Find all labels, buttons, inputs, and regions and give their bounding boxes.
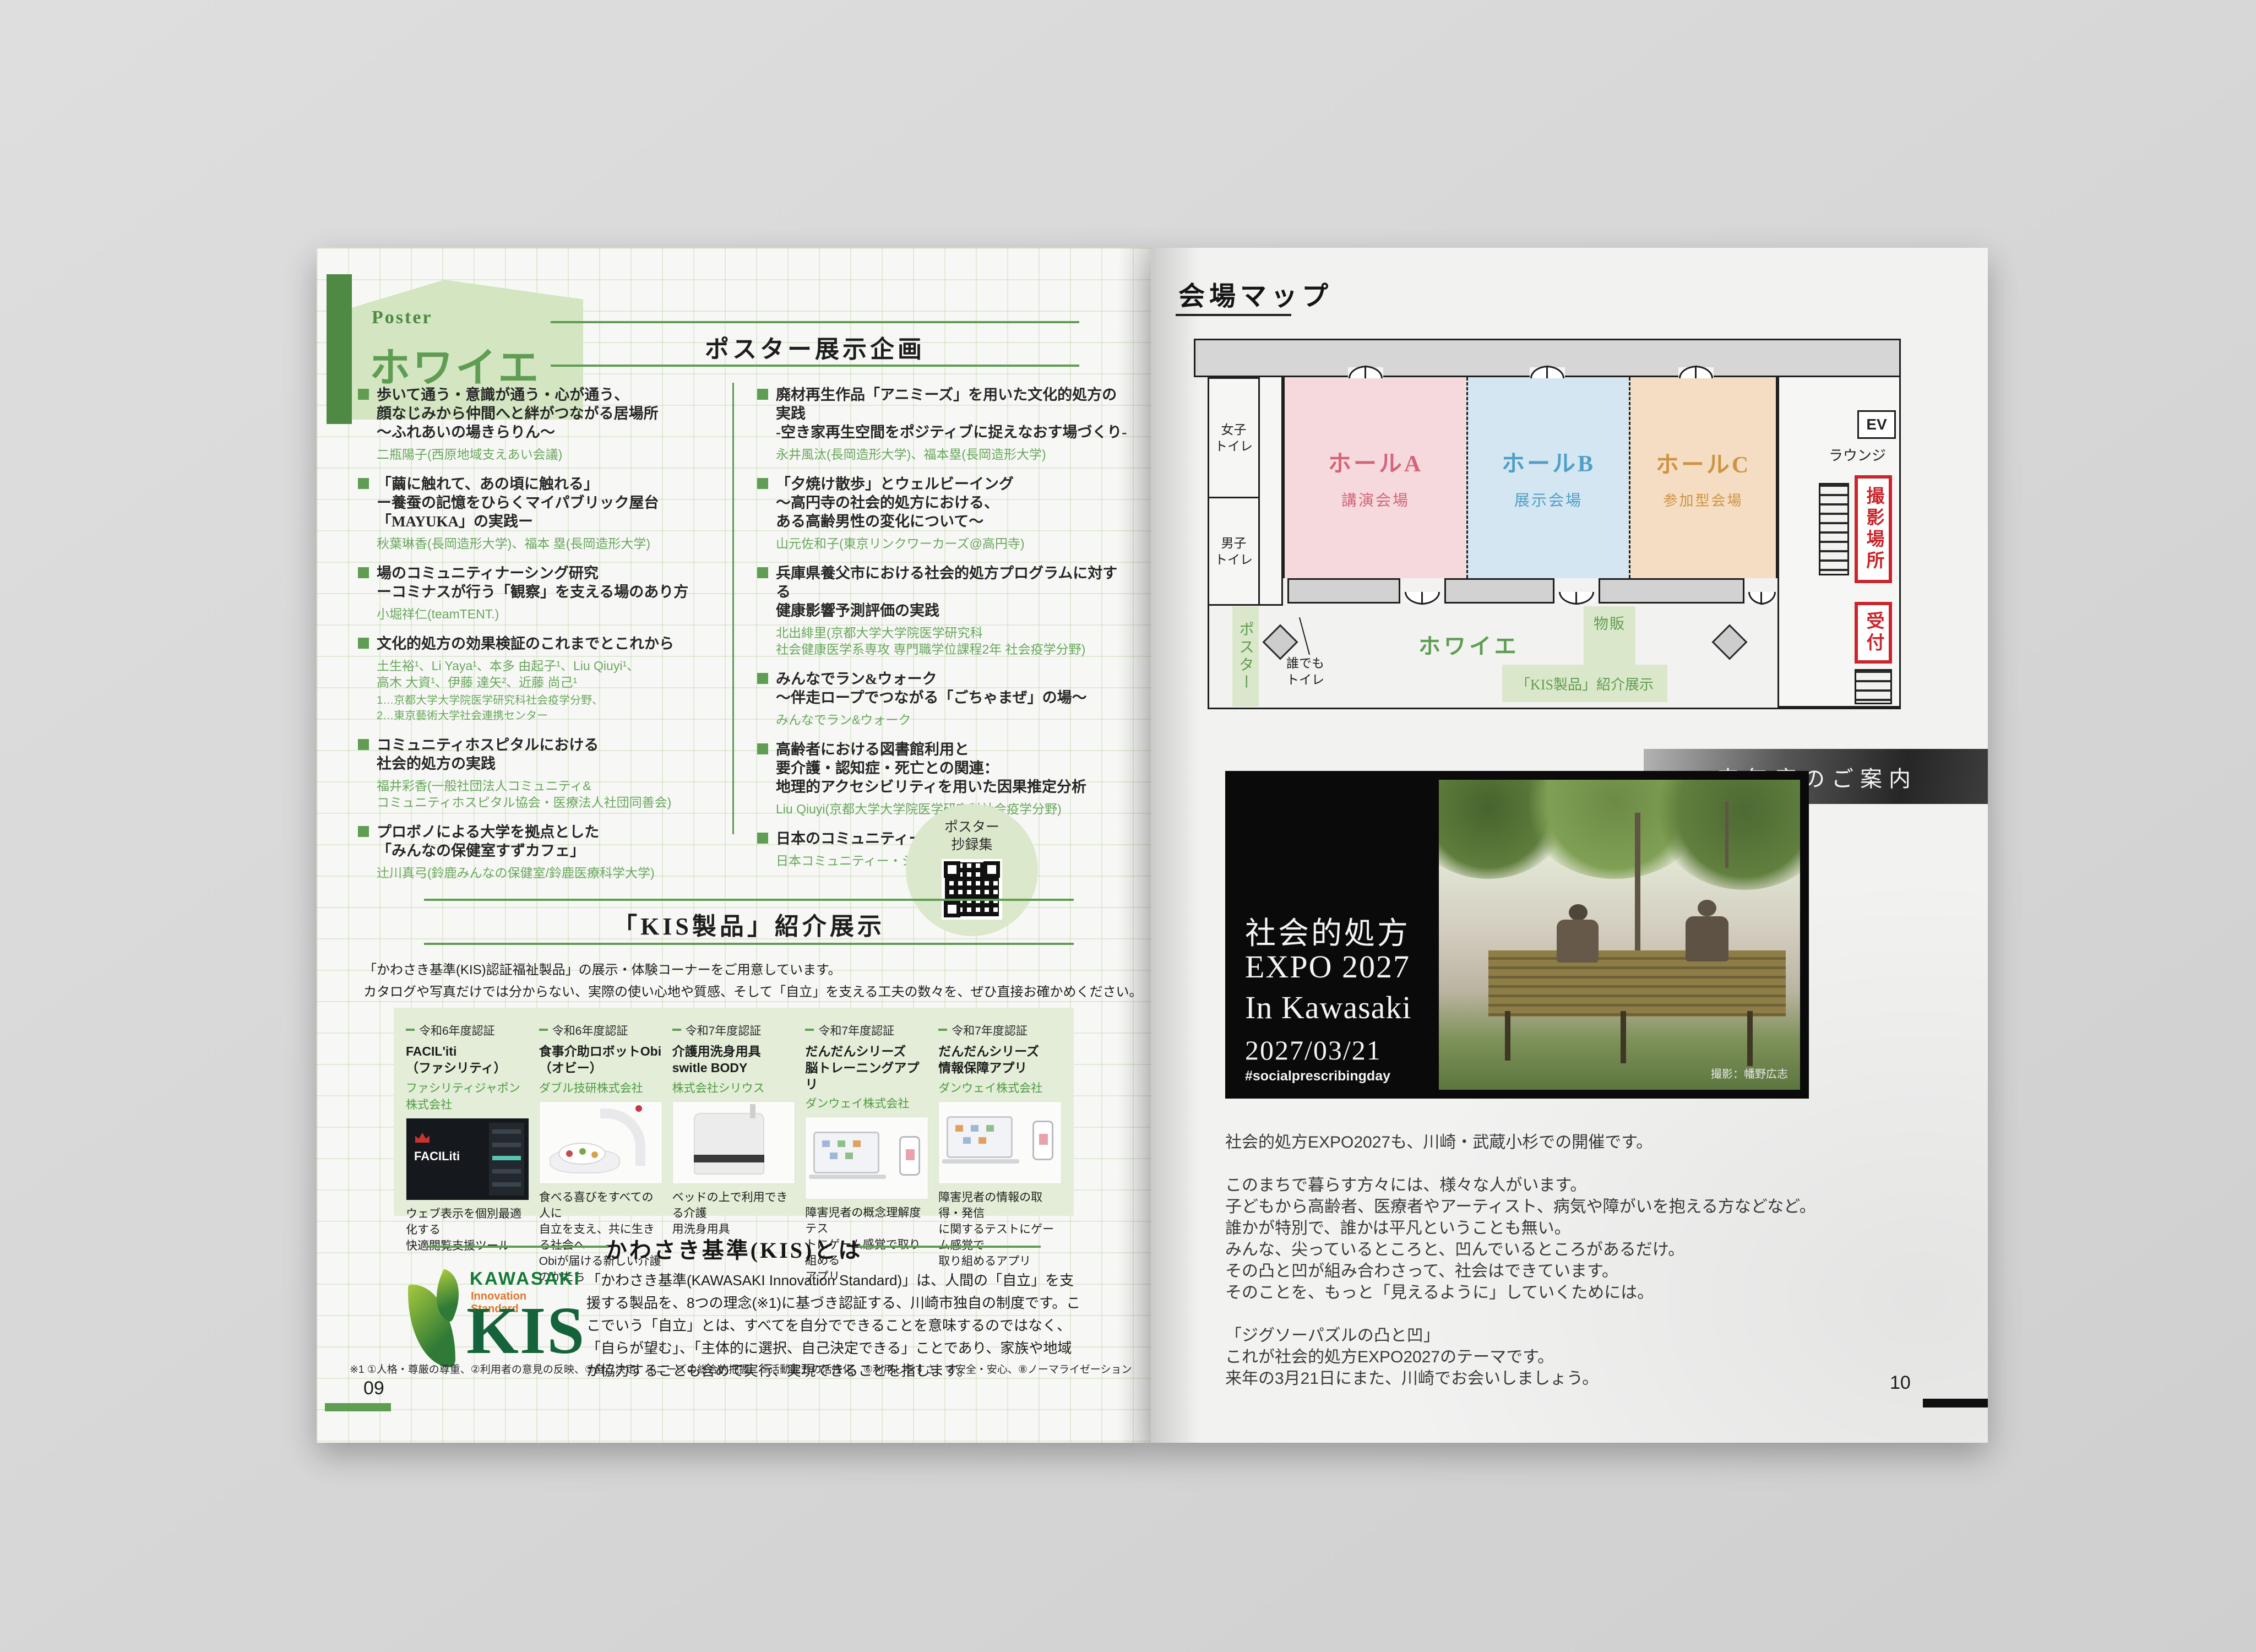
poster-item: プロボノによる大学を拠点とした 「みんなの保健室すずカフェ」 辻川真弓(鈴鹿みん… (358, 823, 721, 881)
hall-c-sub: 参加型会場 (1663, 490, 1743, 510)
page-number-bar (325, 1403, 391, 1411)
product-company: ダンウェイ株式会社 (938, 1079, 1062, 1096)
poster-item: 歩いて通う・意識が通う・心が通う、 顔なじみから仲間へと絆がつながる居場所 ～ふ… (358, 385, 721, 463)
poster-authors: 辻川真弓(鈴鹿みんなの保健室/鈴鹿医療科学大学) (358, 865, 721, 881)
app-tile-decoration (838, 1140, 845, 1147)
next-year-body-text: 社会的処方EXPO2027も、川崎・武蔵小杉での開催です。 このまちで暮らす方々… (1225, 1132, 1985, 1389)
page-number: 10 (1890, 1372, 1911, 1394)
door-icon (1678, 367, 1714, 378)
pointer-line (1299, 617, 1310, 655)
ui-row-decoration (492, 1129, 521, 1134)
map-reception: 受付 (1855, 602, 1892, 664)
map-wall (1208, 606, 1209, 709)
page-left: Poster ホワイエ ポスター展示企画 歩いて通う・意識が通う・心が通う、 顔… (317, 248, 1151, 1443)
poster-column-left: 歩いて通う・意識が通う・心が通う、 顔なじみから仲間へと絆がつながる居場所 ～ふ… (358, 385, 721, 893)
ui-row-decoration (492, 1182, 521, 1187)
poster-section-title: ポスター展示企画 (551, 329, 1079, 365)
page-number: 09 (363, 1378, 384, 1399)
header-eyebrow: Poster (372, 307, 433, 328)
product-company: ファシリティジャポン株式会社 (406, 1079, 529, 1112)
bench-leg-decoration (1505, 1011, 1510, 1061)
product-image-switle (672, 1101, 796, 1184)
map-poster-area: ポスター (1232, 606, 1259, 707)
about-rule-right (859, 1246, 1041, 1248)
column-divider (732, 383, 734, 834)
poster-authors: 福井彩香(一般社団法人コミュニティ& コミュニティホスピタル協会・医療法人社団同… (358, 778, 721, 811)
qr-eye (944, 861, 960, 878)
person-decoration (1686, 916, 1728, 961)
food-decoration (635, 1105, 642, 1112)
ui-row-decoration (492, 1169, 521, 1173)
poster-authors: 二瓶陽子(西原地域支えあい会議) (358, 446, 721, 463)
poster-item: 高齢者における図書館利用と 要介護・認知症・死亡との関連： 地理的アクセシビリテ… (757, 740, 1132, 817)
kis-logo-letters: KIS (466, 1292, 585, 1370)
hall-a-sub: 講演会場 (1341, 488, 1410, 510)
product-cert: 令和6年度認証 (406, 1022, 529, 1039)
poster-item: みんなでラン&ウォーク ～伴走ロープでつながる「ごちゃまぜ」の場～ みんなでラン… (757, 670, 1132, 728)
poster-area-label: ポスター (1235, 621, 1257, 692)
bench-decoration (1488, 950, 1786, 1017)
kis-about-title: かわさき基準(KIS)とは (317, 1232, 1151, 1264)
map-shop-area: 物販 (1584, 606, 1635, 665)
poster-authors: みんなでラン&ウォーク (757, 711, 1132, 728)
person-decoration (1569, 904, 1588, 921)
product-name: だんだんシリーズ 脳トレーニングアプリ (805, 1043, 928, 1093)
venue-map: 女子 トイレ 男子 トイレ ホールA 講演会場 ホールB 展示会場 ホールC 参… (1194, 339, 1901, 711)
poster-title: 場のコミュニティナーシング研究 ーコミナスが行う「観察」を支える場のあり方 (358, 564, 721, 601)
banner-date: 2027/03/21 (1245, 1034, 1382, 1066)
product-company: ダンウェイ株式会社 (805, 1095, 928, 1111)
map-foyer-label: ホワイエ (1418, 628, 1520, 660)
expo-banner: 社会的処方 EXPO 2027 In Kawasaki 2027/03/21 #… (1225, 771, 1809, 1099)
map-hall-a: ホールA 講演会場 (1283, 377, 1466, 578)
map-stage-block (1599, 578, 1744, 604)
product-name: だんだんシリーズ 情報保障アプリ (938, 1043, 1062, 1077)
hall-c-name: ホールC (1656, 446, 1751, 480)
banner-line1: 社会的処方 (1245, 909, 1410, 953)
kis-product-panel: 令和6年度認証 FACIL'iti （ファシリティ） ファシリティジャポン株式会… (394, 1008, 1074, 1216)
ui-row-decoration (492, 1143, 521, 1147)
map-hall-c: ホールC 参加型会場 (1629, 377, 1777, 578)
app-tile-decoration (955, 1125, 963, 1132)
poster-item: 「夕焼け散歩」とウェルビーイング ～高円寺の社会的処方における、 ある高齢男性の… (757, 475, 1132, 552)
poster-item: 文化的処方の効果検証のこれまでとこれから 土生裕¹、Li Yaya¹、本多 由起… (358, 634, 721, 724)
page-number-bar (1923, 1399, 1988, 1408)
product-cert: 令和7年度認証 (672, 1022, 796, 1039)
app-tile-decoration (853, 1140, 861, 1147)
reception-label: 受付 (1860, 611, 1887, 654)
header-green-bar (327, 274, 352, 424)
poster-title: 「繭に触れて、あの頃に触れる」 ー養蚕の記憶をひらくマイパブリック屋台 「MAY… (358, 475, 721, 531)
product-name: 介護用洗身用具 switle BODY (672, 1043, 796, 1077)
map-diamond-marker (1711, 624, 1747, 660)
bench-leg-decoration (1747, 1011, 1753, 1066)
product-caption: ベッドの上で利用できる介護 用洗身用具 (672, 1189, 796, 1237)
poster-title: みんなでラン&ウォーク ～伴走ロープでつながる「ごちゃまぜ」の場～ (757, 670, 1132, 707)
qr-label: ポスター 抄録集 (906, 818, 1038, 854)
hall-a-name: ホールA (1328, 445, 1423, 479)
title-rule-top (551, 321, 1079, 323)
food-decoration (566, 1150, 573, 1157)
product-card: 令和6年度認証 FACIL'iti （ファシリティ） ファシリティジャポン株式会… (406, 1022, 529, 1202)
banner-line2: EXPO 2027 (1245, 948, 1410, 985)
person-decoration (1698, 900, 1716, 916)
food-decoration (591, 1151, 598, 1158)
product-card: 令和7年度認証 だんだんシリーズ 情報保障アプリ ダンウェイ株式会社 障害児者の… (938, 1022, 1062, 1202)
map-mens-toilet: 男子 トイレ (1208, 497, 1260, 606)
banner-hashtag: #socialprescribingday (1245, 1068, 1390, 1084)
map-accessible-toilet-label: 誰でも トイレ (1286, 655, 1324, 688)
food-decoration (579, 1148, 586, 1155)
app-tile-decoration (978, 1137, 986, 1144)
crown-icon (415, 1133, 430, 1143)
hall-b-name: ホールB (1502, 445, 1595, 479)
map-photo-spot: 撮影場所 (1855, 475, 1892, 583)
poster-authors: 秋葉琳香(長岡造形大学)、福本 塁(長岡造形大学) (358, 535, 721, 552)
poster-title: 文化的処方の効果検証のこれまでとこれから (358, 634, 721, 653)
poster-authors: 永井風汰(長岡造形大学)、福本塁(長岡造形大学) (757, 446, 1132, 463)
poster-authors: 土生裕¹、Li Yaya¹、本多 由起子¹、Liu Qiuyi¹、 高木 大資¹… (358, 657, 721, 691)
map-stage-block (1287, 578, 1400, 604)
map-title-underline (1176, 314, 1291, 316)
photo-spot-label: 撮影場所 (1860, 486, 1887, 572)
map-wall (1208, 708, 1901, 709)
poster-item: 場のコミュニティナーシング研究 ーコミナスが行う「観察」を支える場のあり方 小堀… (358, 564, 721, 622)
map-stage-block (1444, 578, 1554, 604)
tree-trunk-decoration (1725, 802, 1728, 868)
door-icon (1348, 367, 1383, 378)
map-title: 会場マップ (1178, 274, 1333, 313)
poster-item: 「繭に触れて、あの頃に触れる」 ー養蚕の記憶をひらくマイパブリック屋台 「MAY… (358, 475, 721, 552)
product-card: 令和7年度認証 だんだんシリーズ 脳トレーニングアプリ ダンウェイ株式会社 障害… (805, 1022, 928, 1202)
kis-section-title: 「KIS製品」紹介展示 (424, 906, 1074, 942)
product-image-label: FACILiti (414, 1149, 460, 1164)
kis-about-footnote: ※1 ①人格・尊厳の尊重、②利用者の意見の反映、③自己決定、④ニーズの総合的把握… (350, 1361, 1143, 1376)
page-right: 会場マップ 女子 トイレ 男子 トイレ ホールA 講演会場 ホールB 展示会場 … (1151, 248, 1988, 1443)
map-hall-b: ホールB 展示会場 (1466, 377, 1629, 578)
poster-authors: 北出緋里(京都大学大学院医学研究科 社会健康医学系専攻 専門職学位課程2年 社会… (757, 624, 1132, 657)
app-tile-decoration (986, 1125, 994, 1132)
product-company: 株式会社シリウス (672, 1079, 796, 1096)
door-icon (1558, 592, 1595, 603)
product-card: 令和7年度認証 介護用洗身用具 switle BODY 株式会社シリウス ベッド… (672, 1022, 796, 1202)
poster-authors: 山元佐和子(東京リンクワーカーズ@高円寺) (757, 535, 1132, 552)
app-tile-decoration (845, 1153, 853, 1159)
hall-b-sub: 展示会場 (1514, 488, 1583, 510)
poster-item: 兵庫県養父市における社会的処方プログラムに対する 健康影響予測評価の実践 北出緋… (757, 564, 1132, 657)
product-name: 食事介助ロボットObi （オビー） (539, 1043, 662, 1077)
about-rule-left (427, 1246, 608, 1248)
laptop-base-decoration (942, 1159, 1019, 1164)
kis-rule-top (424, 899, 1074, 901)
appliance-nozzle-decoration (750, 1104, 755, 1118)
poster-column-right: 廃材再生作品「アニミーズ」を用いた文化的処方の実践 -空き家再生空間をポジティブ… (757, 385, 1132, 881)
map-kis-exhibit-area: 「KIS製品」紹介展示 (1502, 665, 1667, 702)
page-left-title: ホワイエ (369, 335, 541, 394)
poster-title: コミュニティホスピタルにおける 社会的処方の実践 (358, 736, 721, 773)
appliance-band-decoration (694, 1155, 764, 1162)
poster-title: 高齢者における図書館利用と 要介護・認知症・死亡との関連： 地理的アクセシビリテ… (757, 740, 1132, 796)
poster-title: 兵庫県養父市における社会的処方プログラムに対する 健康影響予測評価の実践 (757, 564, 1132, 620)
app-tile-decoration (822, 1140, 830, 1147)
park-photo: 撮影：幡野広志 (1439, 780, 1800, 1090)
map-lounge-label: ラウンジ (1816, 444, 1899, 465)
appliance-decoration (694, 1113, 764, 1175)
poster-title: プロボノによる大学を拠点とした 「みんなの保健室すずカフェ」 (358, 823, 721, 860)
product-cert: 令和7年度認証 (938, 1022, 1062, 1039)
poster-title: 廃材再生作品「アニミーズ」を用いた文化的処方の実践 -空き家再生空間をポジティブ… (757, 385, 1132, 442)
stairs-icon (1855, 669, 1892, 704)
product-company: ダブル技研株式会社 (539, 1079, 662, 1096)
kis-rule-bottom (424, 943, 1074, 945)
kis-logo: KAWASAKI Innovation Standard KIS (405, 1264, 575, 1374)
ui-row-decoration (492, 1156, 521, 1160)
product-image-info-app (938, 1101, 1062, 1184)
app-tile-decoration (830, 1153, 838, 1159)
kis-logo-wordmark: KAWASAKI (470, 1268, 581, 1289)
photo-credit: 撮影：幡野広志 (1711, 1065, 1788, 1081)
person-decoration (1557, 920, 1599, 963)
poster-title: 歩いて通う・意識が通う・心が通う、 顔なじみから仲間へと絆がつながる居場所 ～ふ… (358, 385, 721, 442)
door-icon (1404, 592, 1440, 603)
qr-eye (983, 861, 1000, 878)
product-image-obi (539, 1101, 662, 1184)
bench-leg-decoration (1621, 1011, 1626, 1063)
poster-affiliation-note: 1…京都大学大学院医学研究科社会疫学分野、 2…東京藝術大学社会連携センター (358, 693, 721, 724)
stairs-icon (1819, 483, 1849, 575)
banner-line3: In Kawasaki (1245, 989, 1412, 1026)
door-icon (1748, 592, 1776, 603)
product-card: 令和6年度認証 食事介助ロボットObi （オビー） ダブル技研株式会社 食べる喜… (539, 1022, 662, 1202)
laptop-base-decoration (809, 1175, 886, 1179)
map-elevator: EV (1857, 410, 1896, 439)
map-hallway-strip (1258, 377, 1283, 606)
product-cert: 令和6年度認証 (539, 1022, 662, 1039)
phone-screen-decoration (1039, 1134, 1048, 1145)
product-image-faciliti: FACILiti (406, 1118, 529, 1200)
kis-intro-text: 「かわさき基準(KIS)認証福祉製品」の展示・体験コーナーをご用意しています。 … (363, 959, 1143, 1003)
app-tile-decoration (971, 1125, 978, 1132)
product-name: FACIL'iti （ファシリティ） (406, 1043, 529, 1077)
title-rule-bottom (551, 365, 1079, 367)
phone-screen-decoration (906, 1149, 915, 1160)
app-tile-decoration (963, 1137, 971, 1144)
product-image-brain-app (805, 1117, 928, 1199)
poster-authors: 小堀祥仁(teamTENT.) (358, 606, 721, 622)
poster-item: コミュニティホスピタルにおける 社会的処方の実践 福井彩香(一般社団法人コミュニ… (358, 736, 721, 811)
poster-item: 廃材再生作品「アニミーズ」を用いた文化的処方の実践 -空き家再生空間をポジティブ… (757, 385, 1132, 463)
poster-title: 「夕焼け散歩」とウェルビーイング ～高円寺の社会的処方における、 ある高齢男性の… (757, 475, 1132, 531)
product-cert: 令和7年度認証 (805, 1022, 928, 1039)
map-womens-toilet: 女子 トイレ (1208, 377, 1260, 498)
brochure-spread: Poster ホワイエ ポスター展示企画 歩いて通う・意識が通う・心が通う、 顔… (0, 0, 2256, 1652)
door-icon (1530, 367, 1565, 378)
